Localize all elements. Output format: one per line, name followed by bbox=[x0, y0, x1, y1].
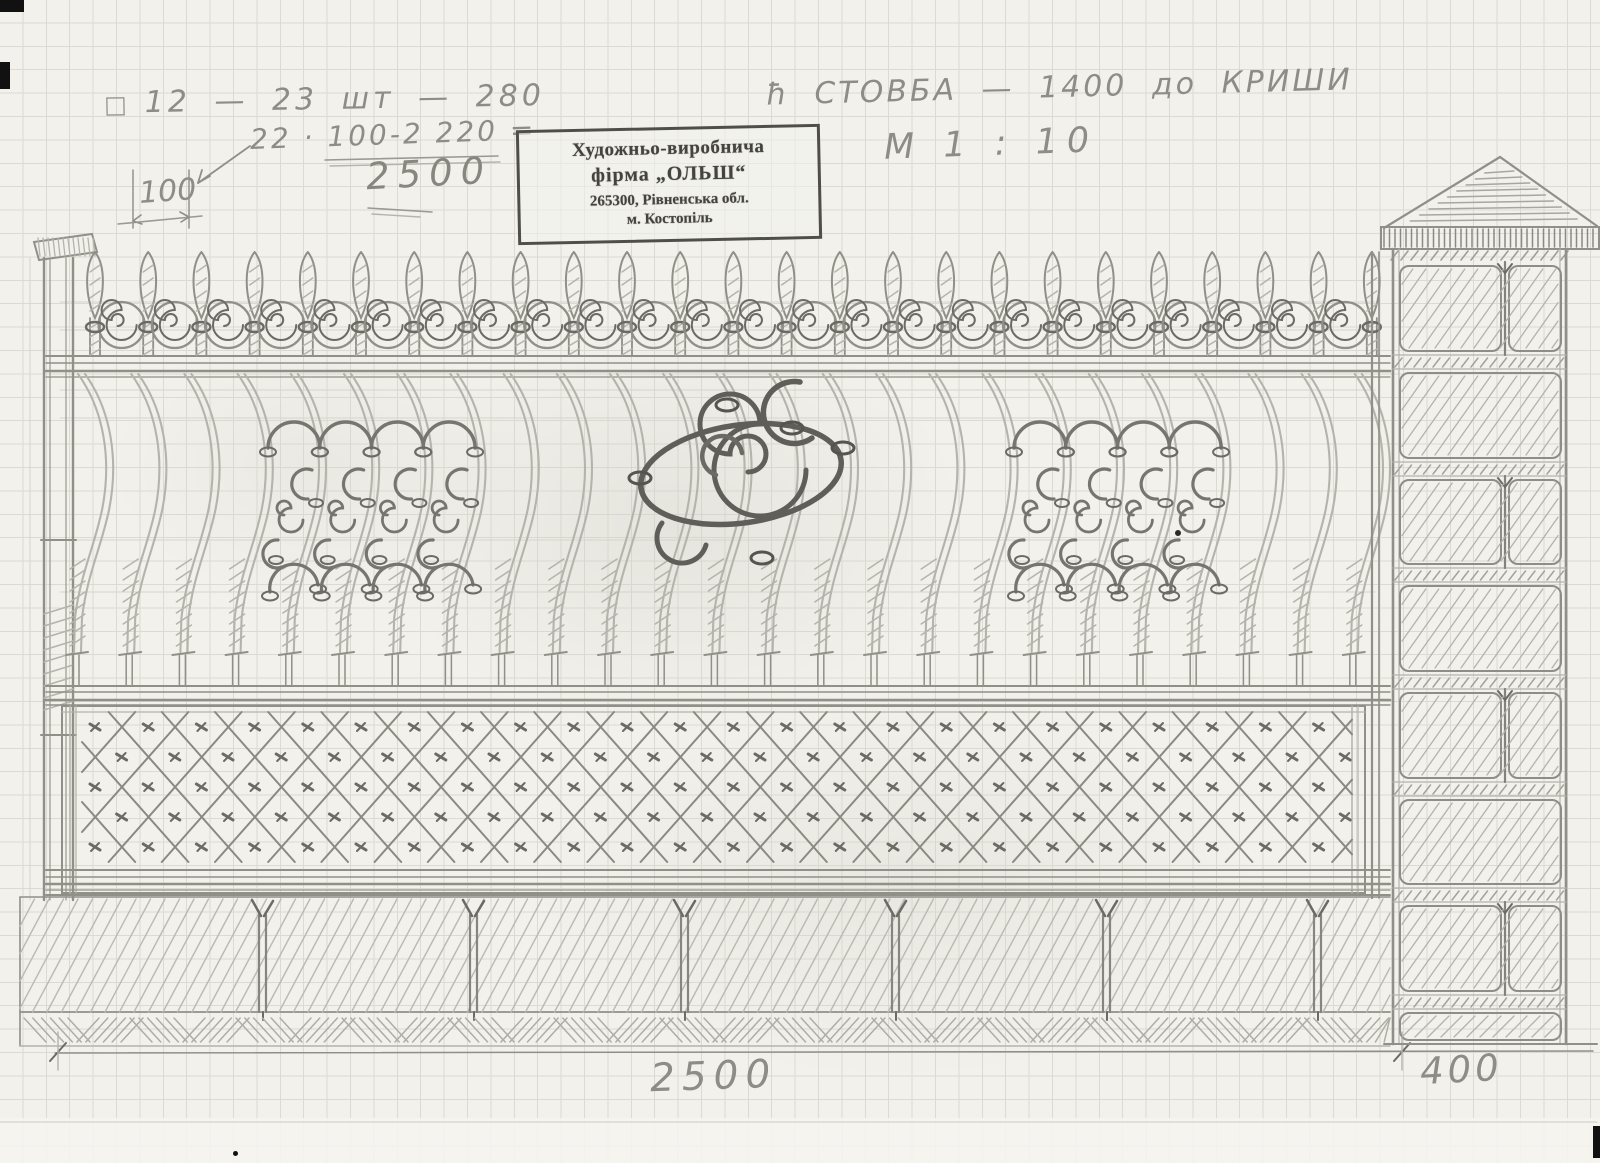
panel-width-dimension: 2500 bbox=[649, 1052, 778, 1101]
scanned-sketch-page: □12 — 23 шт — 280 22 · 100-2 220 = 2500 … bbox=[0, 0, 1600, 1163]
ground-band bbox=[20, 1018, 1390, 1046]
scan-artifact-dot bbox=[233, 1151, 238, 1156]
scale-note: М 1 : 10 bbox=[883, 120, 1098, 167]
brick-pillar bbox=[1381, 157, 1599, 1044]
scan-artifact-left-edge bbox=[0, 62, 10, 89]
top-rail bbox=[46, 356, 1390, 377]
company-stamp: Художньо-виробнича фірма „ОЛЬШ“ 265300, … bbox=[516, 124, 822, 245]
scan-artifact-top-left bbox=[0, 0, 24, 12]
pillar-width-dimension: 400 bbox=[1419, 1046, 1504, 1093]
calc-total: 2500 bbox=[365, 149, 493, 199]
panel-end-post bbox=[1372, 252, 1379, 898]
bottom-rail bbox=[46, 870, 1390, 895]
square-bar-symbol: □ bbox=[104, 90, 131, 118]
mid-rail bbox=[46, 686, 1390, 705]
detail-dimension-100: 100 bbox=[138, 172, 198, 211]
scan-bottom-strip bbox=[0, 1118, 1600, 1163]
scan-artifact-bottom-right bbox=[1593, 1126, 1600, 1158]
stamp-line2: фірма „ОЛЬШ“ bbox=[528, 158, 810, 190]
lattice-panel bbox=[62, 706, 1365, 893]
